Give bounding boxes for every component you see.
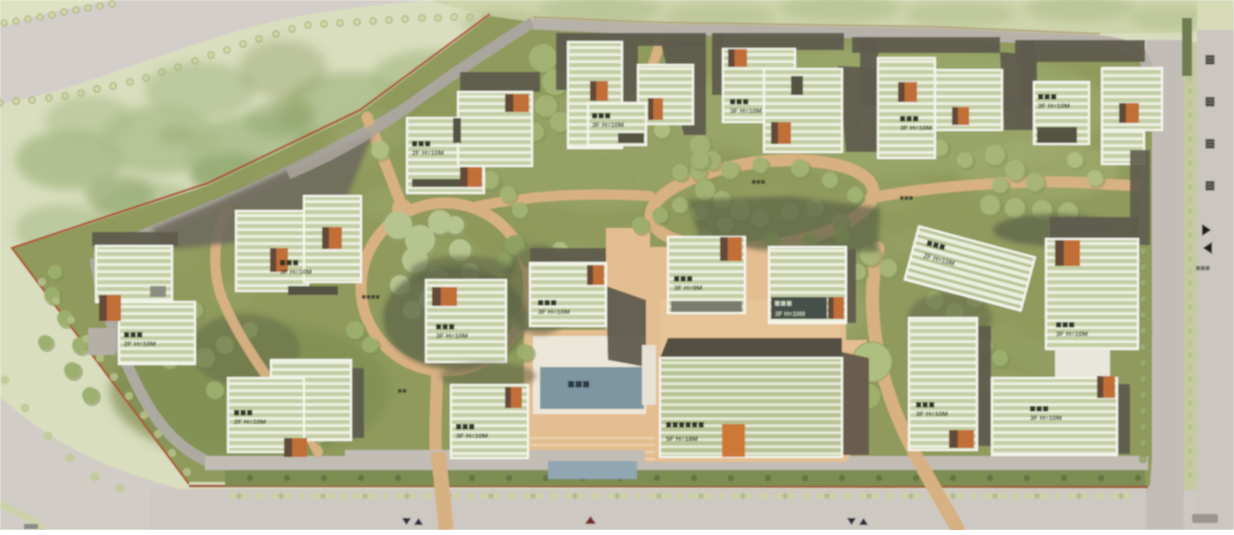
svg-text:3F H=10M: 3F H=10M [538, 309, 570, 316]
svg-text:5F H=18M: 5F H=18M [666, 436, 698, 443]
svg-text:3F H=10M: 3F H=10M [1056, 331, 1088, 338]
svg-text:3F H=10M: 3F H=10M [280, 269, 312, 276]
svg-text:3F H=10M: 3F H=10M [900, 125, 932, 132]
svg-text:3F H=10M: 3F H=10M [1030, 415, 1062, 422]
svg-text:3F H=9M: 3F H=9M [674, 285, 702, 292]
svg-text:3F H=10M: 3F H=10M [592, 122, 624, 129]
svg-text:3F H=10M: 3F H=10M [1038, 103, 1070, 110]
svg-text:3F H=10M: 3F H=10M [916, 411, 948, 418]
svg-text:3F H=10M: 3F H=10M [456, 433, 488, 440]
svg-text:3F H=10M: 3F H=10M [436, 333, 468, 340]
svg-text:3F H=10M: 3F H=10M [730, 108, 762, 115]
svg-text:2F H=10M: 2F H=10M [234, 419, 266, 426]
svg-text:3F H=10M: 3F H=10M [775, 311, 805, 318]
svg-text:2F H=10M: 2F H=10M [412, 150, 444, 157]
svg-text:2F H=10M: 2F H=10M [124, 341, 156, 348]
